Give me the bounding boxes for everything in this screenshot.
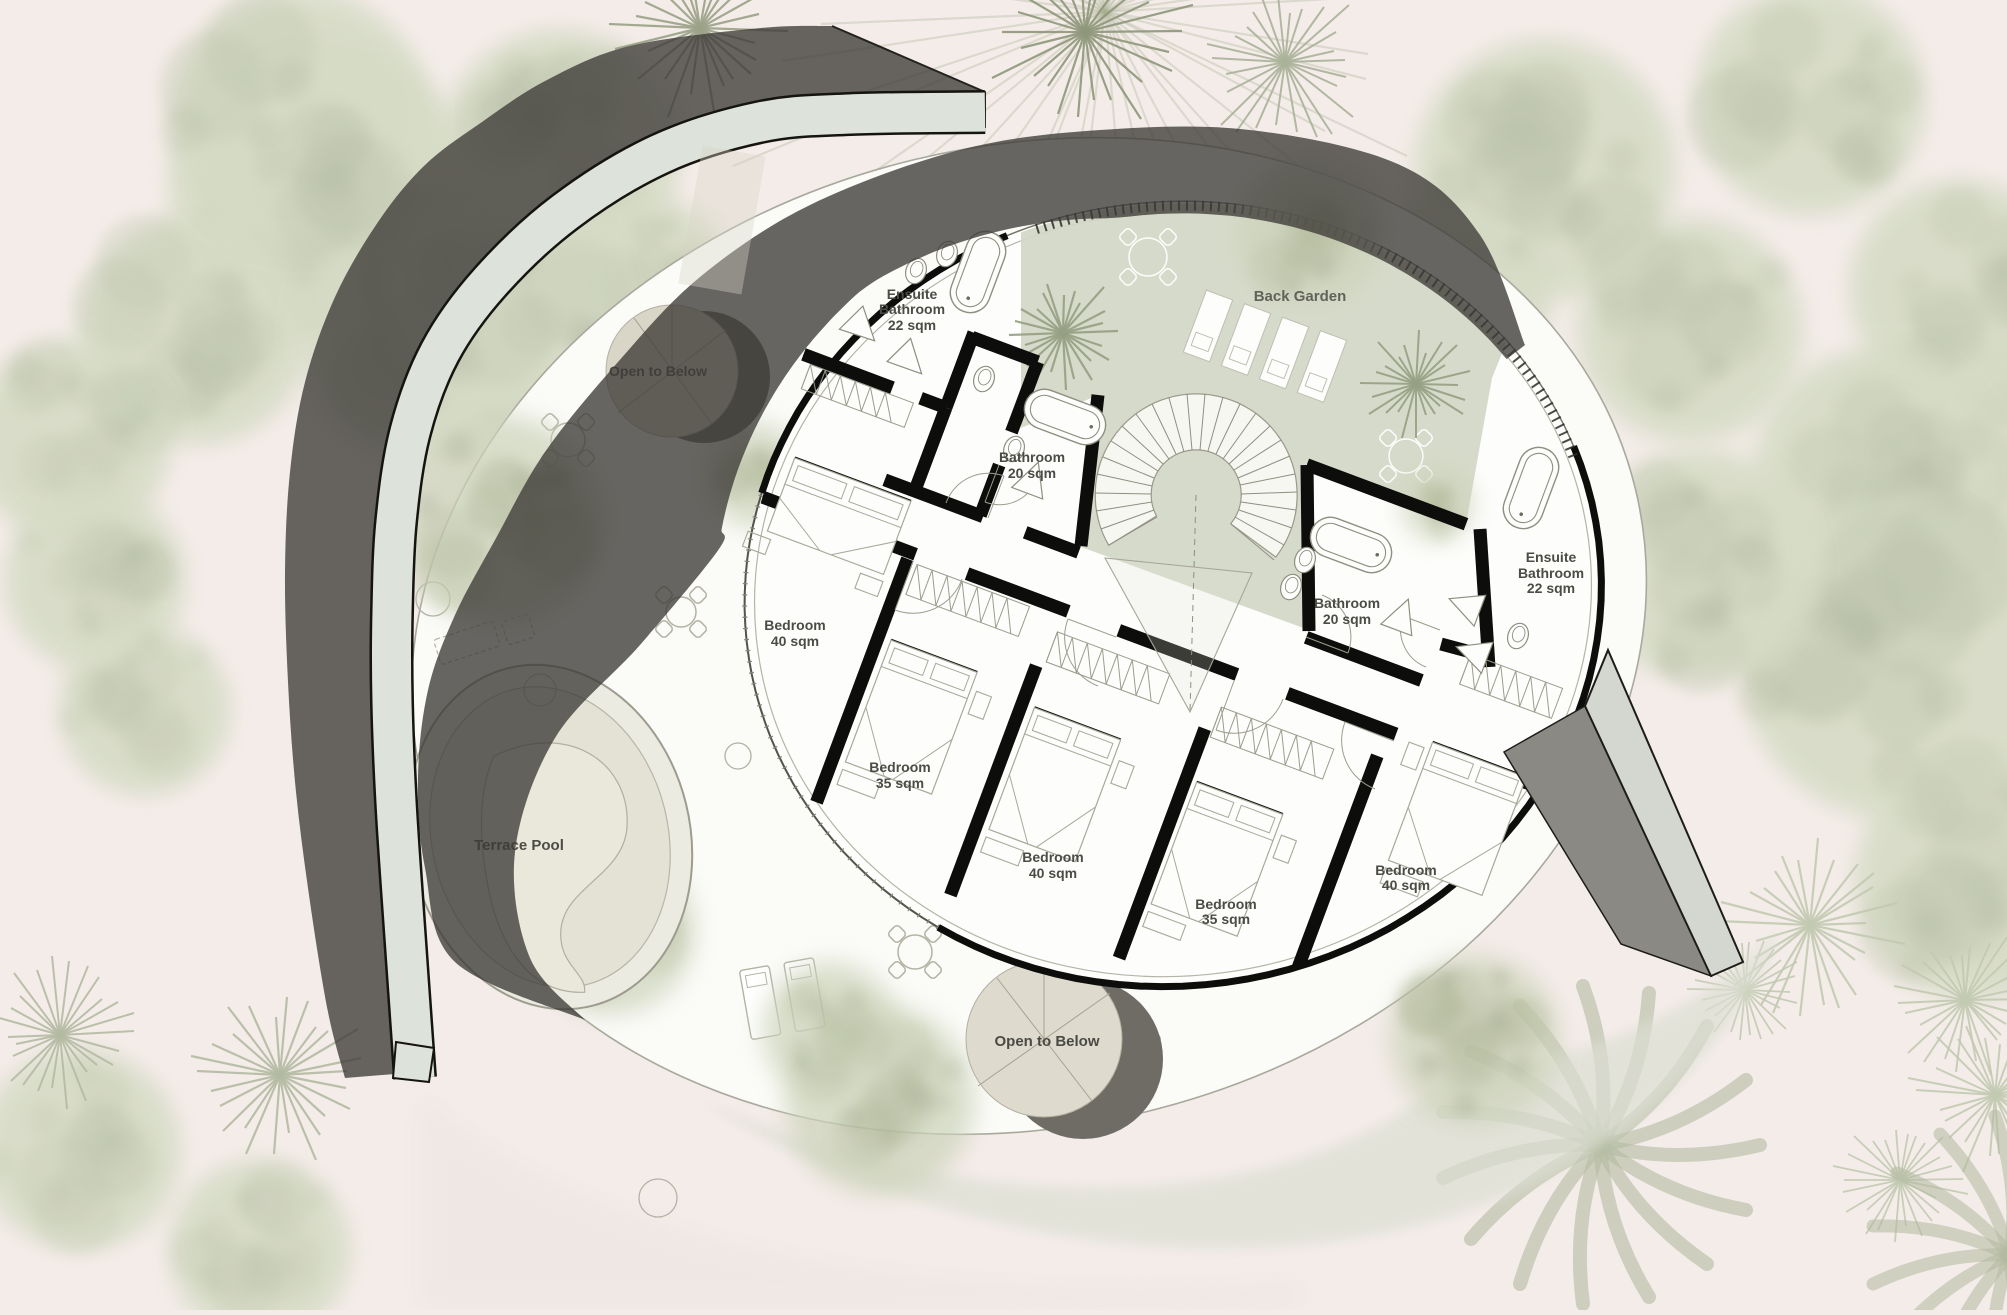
svg-text:Bathroom: Bathroom <box>1518 565 1584 581</box>
svg-text:35 sqm: 35 sqm <box>876 775 924 791</box>
svg-text:Bathroom: Bathroom <box>1314 595 1380 611</box>
svg-text:Ensuite: Ensuite <box>887 286 938 302</box>
svg-text:Bedroom: Bedroom <box>1022 849 1083 865</box>
svg-text:40 sqm: 40 sqm <box>1029 865 1077 881</box>
svg-text:20 sqm: 20 sqm <box>1323 611 1371 627</box>
svg-text:Bathroom: Bathroom <box>999 449 1065 465</box>
svg-text:20 sqm: 20 sqm <box>1008 465 1056 481</box>
svg-text:Ensuite: Ensuite <box>1526 549 1577 565</box>
svg-text:Bedroom: Bedroom <box>869 759 930 775</box>
svg-text:Back Garden: Back Garden <box>1254 288 1347 305</box>
svg-text:Open to Below: Open to Below <box>995 1033 1100 1050</box>
svg-text:Bedroom: Bedroom <box>764 617 825 633</box>
svg-text:Bathroom: Bathroom <box>879 301 945 317</box>
svg-text:40 sqm: 40 sqm <box>1382 877 1430 893</box>
svg-text:40 sqm: 40 sqm <box>771 633 819 649</box>
svg-text:22 sqm: 22 sqm <box>888 317 936 333</box>
svg-text:22 sqm: 22 sqm <box>1527 580 1575 596</box>
svg-text:35 sqm: 35 sqm <box>1202 911 1250 927</box>
svg-text:Bedroom: Bedroom <box>1375 862 1436 878</box>
svg-text:Bedroom: Bedroom <box>1195 896 1256 912</box>
